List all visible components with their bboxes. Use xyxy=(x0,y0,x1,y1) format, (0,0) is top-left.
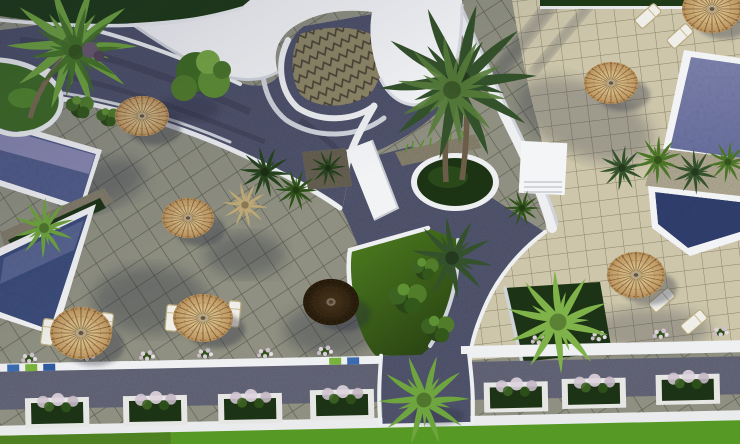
cabana xyxy=(519,141,568,195)
parasol-5 xyxy=(584,62,638,104)
parasol-3 xyxy=(50,307,112,359)
circular-planter xyxy=(411,153,499,211)
top-right-curb xyxy=(540,6,700,9)
top-right-hedge xyxy=(540,0,700,6)
parasol-4 xyxy=(173,294,233,342)
parasol-2 xyxy=(162,198,214,238)
parasol-7 xyxy=(607,252,665,298)
parasol-1 xyxy=(115,96,169,136)
parasol-dark xyxy=(303,279,359,325)
render-viewport xyxy=(0,0,740,444)
chevron-terrace xyxy=(293,28,383,106)
site-plan-render xyxy=(0,0,740,444)
